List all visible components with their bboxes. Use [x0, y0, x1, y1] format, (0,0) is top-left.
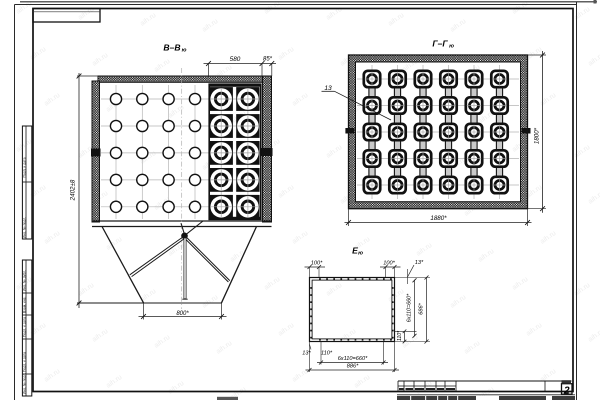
svg-text:110*: 110*: [397, 330, 403, 341]
svg-text:100*: 100*: [383, 261, 395, 267]
svg-text:85*: 85*: [263, 57, 273, 63]
svg-text:ю: ю: [358, 251, 363, 257]
svg-text:Подп. и дата: Подп. и дата: [22, 157, 26, 177]
svg-text:Подп. и дата: Подп. и дата: [22, 317, 26, 337]
svg-text:Инв. № подл.: Инв. № подл.: [22, 217, 26, 238]
svg-text:2402±8: 2402±8: [70, 179, 77, 201]
svg-text:Взам. инв.: Взам. инв.: [22, 297, 26, 313]
svg-text:ю: ю: [182, 48, 187, 54]
svg-text:В–В: В–В: [163, 43, 180, 53]
svg-text:1800*: 1800*: [534, 127, 541, 144]
svg-text:110*: 110*: [321, 351, 333, 357]
svg-text:580: 580: [230, 56, 241, 63]
svg-text:800*: 800*: [176, 311, 189, 317]
svg-text:Г–Г: Г–Г: [432, 39, 448, 49]
svg-text:13*: 13*: [415, 260, 424, 266]
svg-text:1880*: 1880*: [430, 215, 447, 222]
svg-text:13*: 13*: [302, 351, 311, 357]
svg-text:Подп. и дата: Подп. и дата: [22, 352, 26, 372]
svg-text:100*: 100*: [311, 261, 323, 267]
svg-text:6х110=660*: 6х110=660*: [338, 356, 368, 362]
svg-text:Инв. № подл.: Инв. № подл.: [22, 373, 26, 394]
svg-text:6х110=660*: 6х110=660*: [407, 293, 413, 322]
svg-text:ю: ю: [449, 44, 454, 50]
svg-text:686*: 686*: [419, 302, 425, 314]
svg-text:Инв. № дубл.: Инв. № дубл.: [22, 270, 26, 291]
svg-text:886*: 886*: [347, 364, 359, 370]
